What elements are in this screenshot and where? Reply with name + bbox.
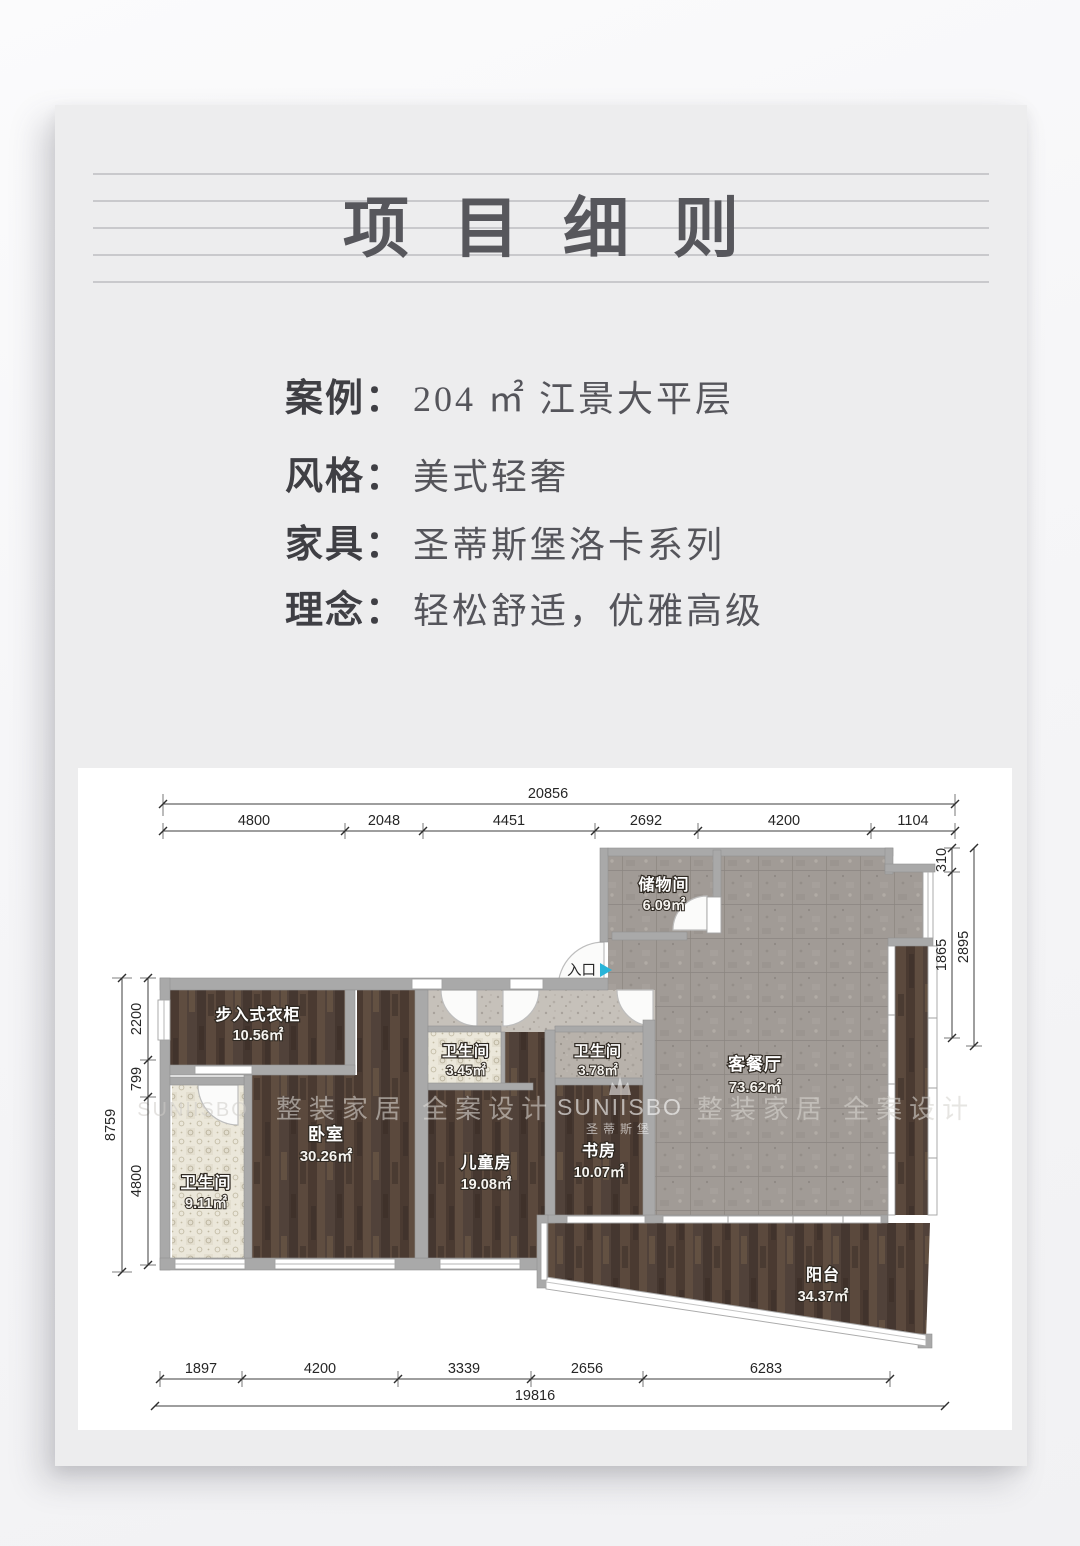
dim-bottom-seg: 3339 bbox=[448, 1361, 480, 1377]
watermark-brand-cn: 圣蒂斯堡 bbox=[586, 1121, 654, 1136]
decorative-line bbox=[93, 281, 989, 283]
info-row-furniture: 家具： 圣蒂斯堡洛卡系列 bbox=[285, 513, 764, 565]
dim-top-total: 20856 bbox=[528, 786, 568, 802]
room-label: 书房 bbox=[582, 1141, 616, 1160]
room-label: 卫生间 bbox=[180, 1173, 231, 1192]
dim-top-seg: 2048 bbox=[368, 813, 400, 829]
dim-left-total: 8759 bbox=[103, 1109, 119, 1141]
dim-top-seg: 1104 bbox=[897, 813, 928, 829]
dim-top-seg: 4451 bbox=[493, 813, 525, 829]
dim-left-seg: 4800 bbox=[129, 1165, 145, 1197]
room-area: 6.09㎡ bbox=[643, 896, 686, 914]
info-row-style: 风格： 美式轻奢 bbox=[285, 445, 764, 497]
dim-left-seg: 2200 bbox=[129, 1003, 145, 1035]
info-label: 家具： bbox=[285, 513, 405, 568]
watermark-brand-faint: SUNIISBO bbox=[137, 1099, 249, 1121]
project-info: 案例： 204 ㎡ 江景大平层 风格： 美式轻奢 家具： 圣蒂斯堡洛卡系列 理念… bbox=[285, 367, 764, 631]
dim-bottom-seg: 4200 bbox=[304, 1361, 336, 1377]
dim-top-seg: 4800 bbox=[238, 813, 270, 829]
info-row-concept: 理念： 轻松舒适，优雅高级 bbox=[285, 579, 764, 631]
room-label: 卧室 bbox=[308, 1124, 344, 1144]
dim-top-seg: 2692 bbox=[630, 813, 662, 829]
room-area: 3.78㎡ bbox=[578, 1062, 618, 1078]
page-title: 项目细则 bbox=[55, 181, 1027, 279]
info-label: 理念： bbox=[285, 579, 405, 634]
room-label: 储物间 bbox=[637, 875, 689, 894]
room-label: 客餐厅 bbox=[727, 1054, 782, 1074]
floor-plan-panel: 入口 储物间 6.09㎡ 客餐厅 73.62㎡ 步入式衣柜 10.56㎡ 卧室 … bbox=[78, 768, 1012, 1430]
watermark-slogan: 整装家居 全案设计 bbox=[276, 1094, 554, 1124]
dim-bottom-total: 19816 bbox=[515, 1388, 555, 1404]
dim-left-seg: 799 bbox=[129, 1067, 145, 1091]
room-area: 19.08㎡ bbox=[461, 1175, 512, 1193]
dim-right-total: 2895 bbox=[956, 931, 972, 963]
info-value: 美式轻奢 bbox=[413, 448, 569, 500]
room-area: 10.07㎡ bbox=[574, 1163, 625, 1181]
info-row-case: 案例： 204 ㎡ 江景大平层 bbox=[285, 367, 764, 419]
room-area: 3.45㎡ bbox=[446, 1062, 486, 1078]
room-label: 儿童房 bbox=[459, 1153, 511, 1172]
room-label: 步入式衣柜 bbox=[215, 1005, 300, 1024]
project-card: 项目细则 案例： 204 ㎡ 江景大平层 风格： 美式轻奢 家具： 圣蒂斯堡洛卡… bbox=[55, 105, 1027, 1466]
info-value: 轻松舒适，优雅高级 bbox=[413, 582, 764, 634]
watermark-slogan: 整装家居 全案设计 bbox=[697, 1094, 975, 1124]
dim-right-seg: 310 bbox=[934, 848, 950, 872]
info-label: 案例： bbox=[285, 367, 405, 422]
room-area: 30.26㎡ bbox=[300, 1147, 353, 1165]
watermark-brand: SUNIISBO bbox=[557, 1094, 683, 1120]
info-label: 风格： bbox=[285, 445, 405, 500]
entry-label: 入口 bbox=[567, 963, 596, 979]
info-value: 圣蒂斯堡洛卡系列 bbox=[413, 516, 725, 568]
dim-right-seg: 1865 bbox=[934, 939, 950, 971]
dim-top-seg: 4200 bbox=[768, 813, 800, 829]
room-label: 卫生间 bbox=[574, 1042, 622, 1060]
page: 项目细则 案例： 204 ㎡ 江景大平层 风格： 美式轻奢 家具： 圣蒂斯堡洛卡… bbox=[0, 0, 1080, 1546]
floor-plan: 入口 储物间 6.09㎡ 客餐厅 73.62㎡ 步入式衣柜 10.56㎡ 卧室 … bbox=[78, 768, 1012, 1430]
info-value: 204 ㎡ 江景大平层 bbox=[413, 370, 734, 422]
room-area: 10.56㎡ bbox=[233, 1026, 284, 1044]
room-area: 9.11㎡ bbox=[185, 1194, 227, 1212]
room-label: 阳台 bbox=[806, 1265, 840, 1284]
dim-bottom-seg: 2656 bbox=[571, 1361, 603, 1377]
decorative-line bbox=[93, 173, 989, 175]
entry-marker: 入口 bbox=[567, 963, 612, 979]
room-area: 34.37㎡ bbox=[798, 1287, 849, 1305]
dim-bottom-seg: 1897 bbox=[185, 1361, 217, 1377]
dim-bottom-seg: 6283 bbox=[750, 1361, 782, 1377]
room-label: 卫生间 bbox=[442, 1042, 490, 1060]
